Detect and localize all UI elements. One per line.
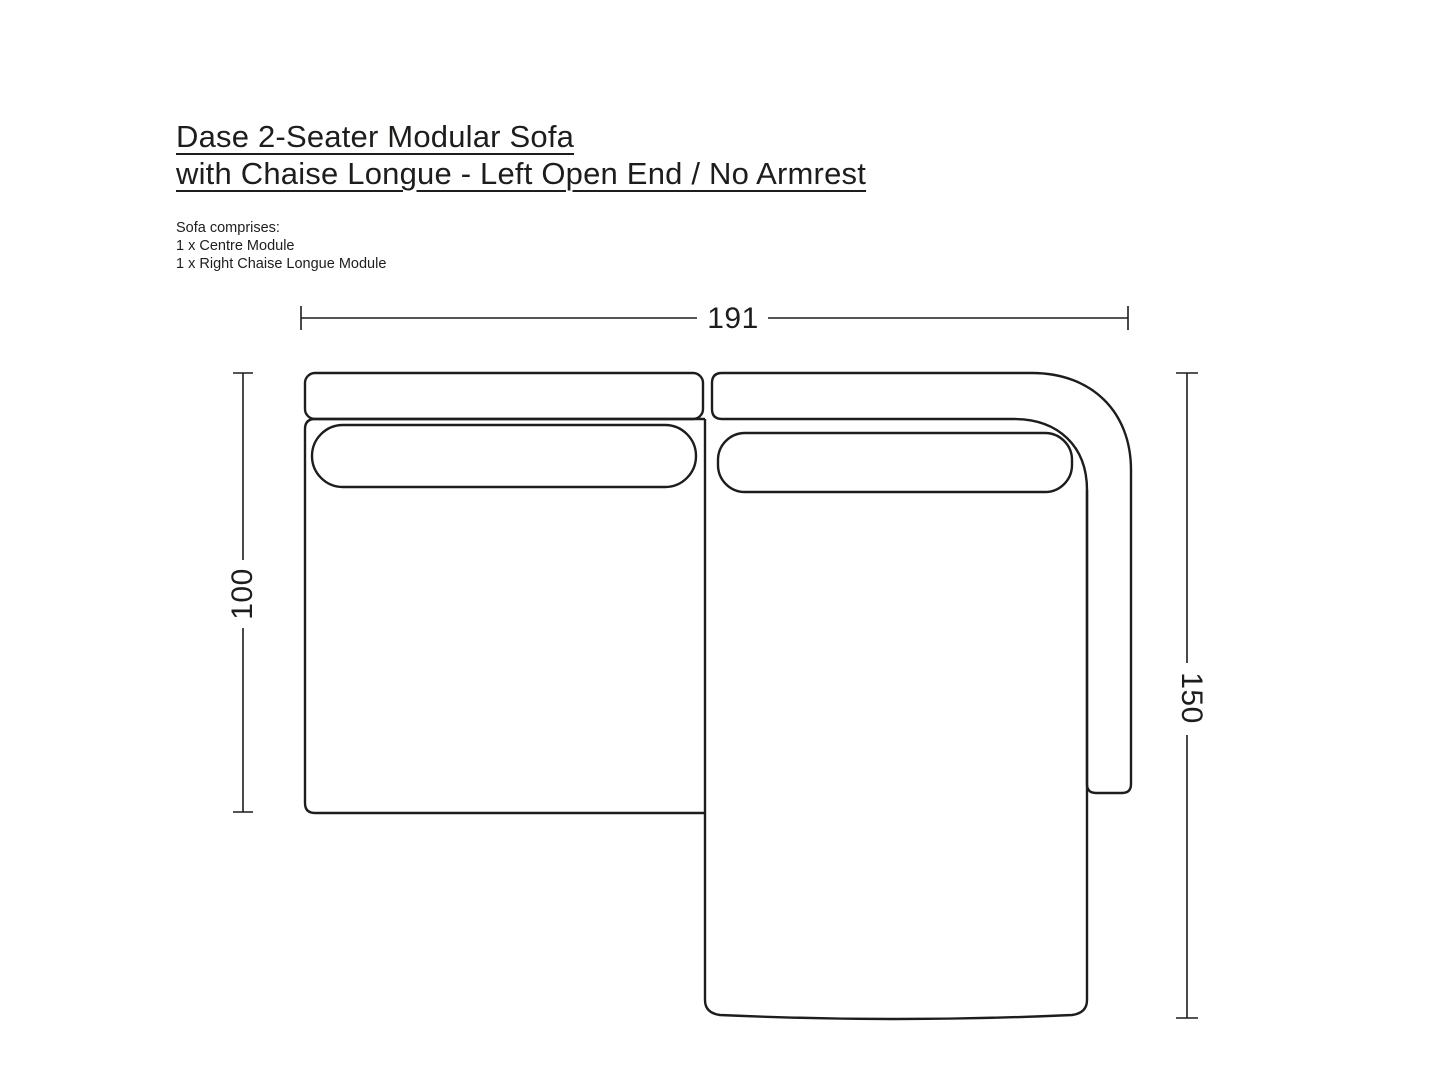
dimension-left-depth-value: 100 [226,568,260,620]
sofa-outline-group [305,373,1131,1019]
right-backrest-and-arm-outline [712,373,1131,793]
sofa-technical-drawing [0,0,1445,1087]
product-drawing-page: Dase 2-Seater Modular Sofa with Chaise L… [0,0,1445,1087]
left-backrest-cushion [305,373,703,419]
chaise-module-body [705,419,1087,1019]
dimension-width-value: 191 [697,302,769,336]
dimension-lines [233,306,1198,1018]
centre-module-body [305,419,705,813]
centre-seat-cushion [312,425,696,487]
dimension-right-depth-value: 150 [1174,672,1208,724]
chaise-seat-cushion [718,433,1072,492]
